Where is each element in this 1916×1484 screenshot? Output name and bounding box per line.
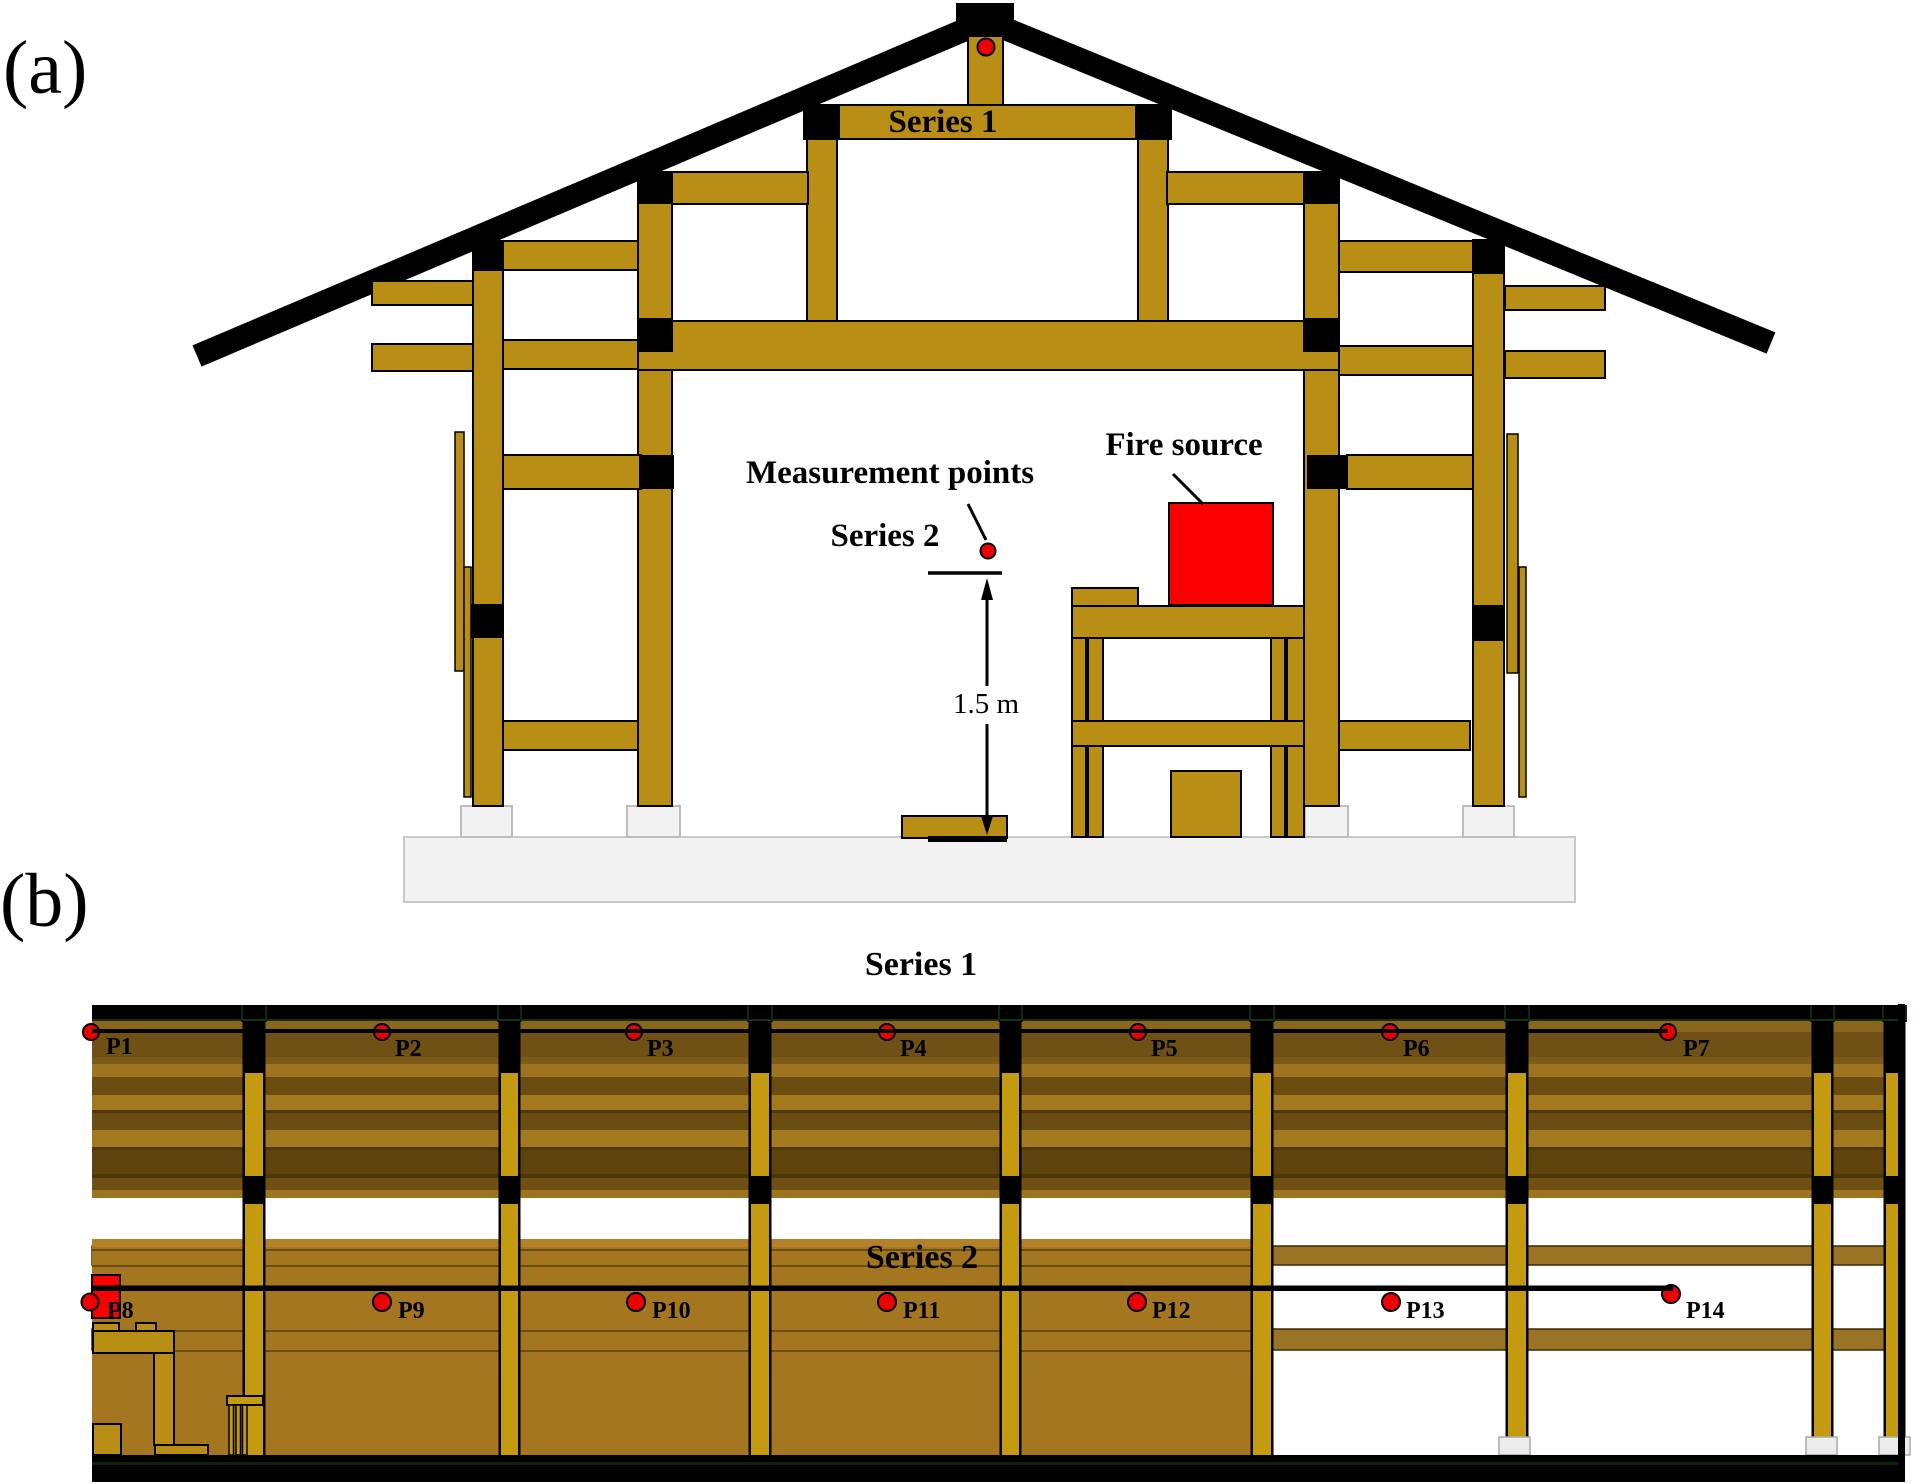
svg-text:P10: P10 <box>652 1298 691 1324</box>
svg-text:Series 2: Series 2 <box>866 1239 978 1276</box>
svg-text:Series 1: Series 1 <box>865 946 977 983</box>
svg-text:P7: P7 <box>1683 1036 1710 1062</box>
svg-text:P8: P8 <box>107 1298 134 1324</box>
svg-text:1.5 m: 1.5 m <box>953 688 1020 720</box>
svg-text:(b): (b) <box>0 859 89 943</box>
svg-text:P12: P12 <box>1152 1298 1191 1324</box>
svg-text:P11: P11 <box>903 1298 940 1324</box>
svg-text:Series 2: Series 2 <box>830 518 939 554</box>
svg-text:Series 1: Series 1 <box>888 104 997 140</box>
svg-text:(a): (a) <box>3 26 87 110</box>
svg-text:Fire source: Fire source <box>1105 427 1262 463</box>
svg-text:P4: P4 <box>900 1036 927 1062</box>
svg-text:P6: P6 <box>1403 1036 1430 1062</box>
svg-text:P1: P1 <box>106 1034 133 1060</box>
svg-text:P5: P5 <box>1151 1036 1178 1062</box>
svg-text:Measurement points: Measurement points <box>746 455 1034 491</box>
svg-text:P9: P9 <box>398 1298 425 1324</box>
svg-text:P2: P2 <box>395 1036 422 1062</box>
svg-text:P13: P13 <box>1406 1298 1445 1324</box>
svg-text:P3: P3 <box>647 1036 674 1062</box>
svg-text:P14: P14 <box>1686 1298 1725 1324</box>
